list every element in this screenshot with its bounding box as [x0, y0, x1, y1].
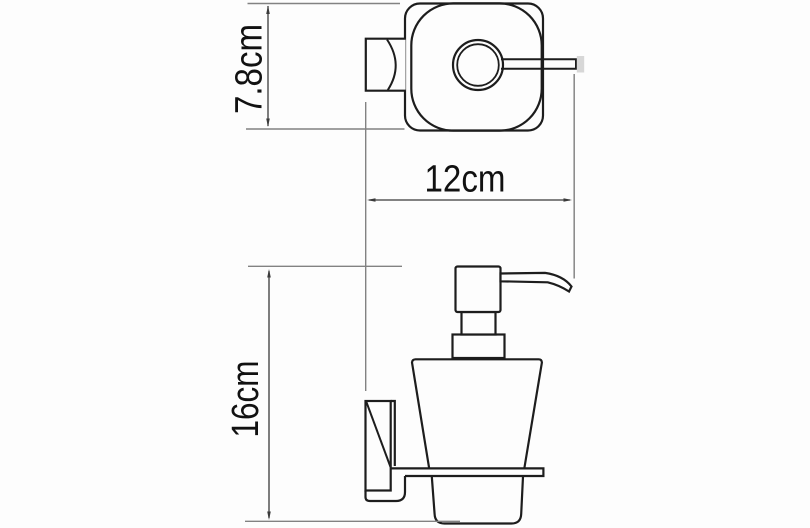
svg-text:12cm: 12cm [425, 159, 506, 201]
svg-text:7.8cm: 7.8cm [229, 24, 271, 114]
svg-text:16cm: 16cm [225, 361, 267, 438]
